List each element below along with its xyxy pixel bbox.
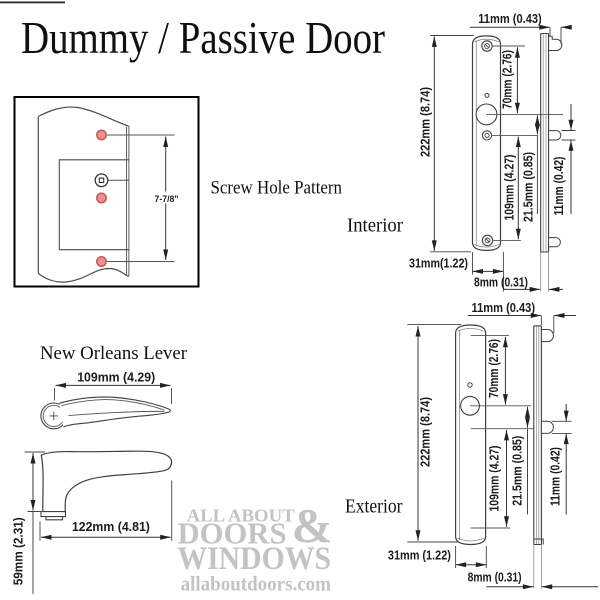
svg-text:8mm (0.31): 8mm (0.31) (474, 276, 528, 290)
svg-text:7-7/8": 7-7/8" (155, 194, 179, 205)
svg-text:11mm (0.43): 11mm (0.43) (472, 301, 536, 315)
svg-text:109mm (4.27): 109mm (4.27) (503, 155, 517, 221)
svg-text:122mm (4.81): 122mm (4.81) (72, 519, 150, 534)
svg-text:8mm (0.31): 8mm (0.31) (468, 571, 522, 585)
svg-text:Screw Hole Pattern: Screw Hole Pattern (211, 178, 343, 199)
svg-text:Interior: Interior (347, 215, 403, 237)
svg-text:222mm (8.74): 222mm (8.74) (419, 397, 433, 467)
svg-text:222mm (8.74): 222mm (8.74) (419, 87, 433, 157)
svg-text:109mm (4.27): 109mm (4.27) (488, 446, 502, 512)
svg-text:11mm (0.42): 11mm (0.42) (549, 447, 563, 506)
svg-text:11mm (0.42): 11mm (0.42) (552, 157, 566, 216)
svg-text:Dummy / Passive Door: Dummy / Passive Door (21, 13, 385, 63)
svg-text:70mm (2.76): 70mm (2.76) (501, 50, 515, 109)
svg-text:70mm (2.76): 70mm (2.76) (487, 339, 501, 398)
svg-text:31mm (1.22): 31mm (1.22) (388, 549, 451, 563)
svg-text:allaboutdoors.com: allaboutdoors.com (181, 572, 332, 596)
svg-text:11mm (0.43): 11mm (0.43) (478, 12, 542, 26)
svg-text:Exterior: Exterior (345, 496, 403, 518)
svg-text:21.5mm (0.85): 21.5mm (0.85) (522, 152, 536, 222)
svg-text:New Orleans Lever: New Orleans Lever (40, 343, 188, 364)
svg-text:31mm(1.22): 31mm(1.22) (409, 257, 468, 271)
svg-text:59mm (2.31): 59mm (2.31) (11, 517, 26, 585)
svg-text:21.5mm (0.85): 21.5mm (0.85) (511, 436, 525, 506)
svg-text:109mm (4.29): 109mm (4.29) (77, 369, 155, 384)
